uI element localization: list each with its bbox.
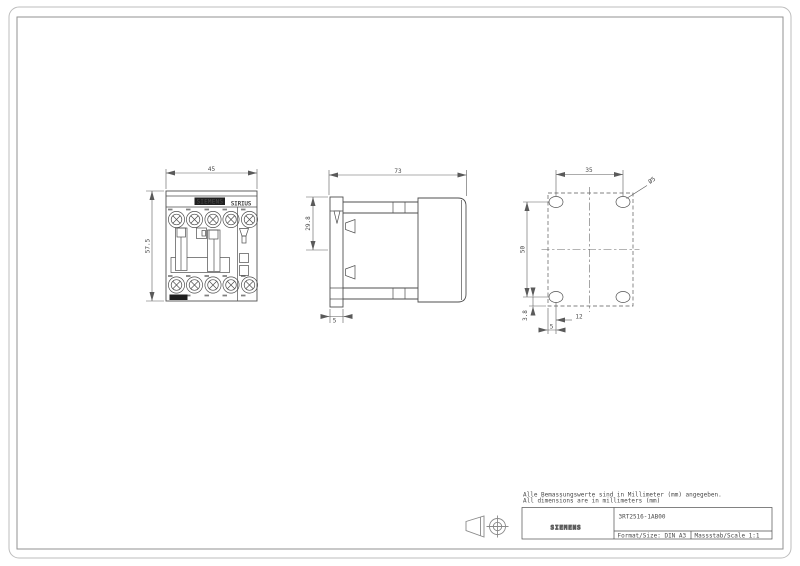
sheet-border [9,7,791,558]
dim-offset: 5 [550,324,554,331]
part-number: 3RT2516-1AB00 [619,514,666,521]
type-label-plate [170,295,188,301]
dim-front-height: 57.5 [145,238,152,253]
front-dimensions: 45 57.5 [145,166,258,301]
hole-diameter-label: Ø5 [647,176,657,186]
terminal-screws-top [168,211,257,227]
siemens-plate-label: SIEMENS [196,199,223,206]
scale-label: Massstab/Scale 1:1 [695,533,760,540]
drawing-notes: Alle Bemassungswerte sind in Millimeter … [523,492,722,505]
title-block: SIEMENS 3RT2516-1AB00 Format/Size: DIN A… [522,508,772,540]
dim-side-foot: 5 [333,318,337,325]
dim-edge-v: 3.8 [522,310,529,321]
dim-holes-v: 50 [520,246,527,254]
dim-side-depth: 73 [394,168,402,175]
dim-holes-h: 35 [585,167,593,174]
rail-clip-spring [334,211,340,224]
siemens-logo: SIEMENS [551,525,582,532]
side-dimensions: 73 29.8 5 [305,168,467,325]
projection-symbol-icon [466,516,509,538]
front-mechanism [171,228,249,276]
mounting-dimensions: 35 Ø5 50 3.8 12 5 [520,167,658,334]
front-view: SIEMENS SIRIUS [145,166,258,301]
drawing-canvas: SIEMENS SIRIUS [0,0,800,566]
note-en: All dimensions are in millimeters (mm) [523,498,660,505]
side-view: 73 29.8 5 [305,168,467,325]
dim-side-clip: 29.8 [305,216,312,231]
dim-edge-h: 12 [575,314,583,321]
dim-front-width: 45 [208,166,216,173]
sirius-label: SIRIUS [231,200,252,207]
mounting-hole-view: 35 Ø5 50 3.8 12 5 [520,167,658,334]
terminal-screws-bottom [168,277,257,293]
format-label: Format/Size: DIN A3 [618,533,687,540]
drawing-sheet: SIEMENS SIRIUS [0,0,800,566]
